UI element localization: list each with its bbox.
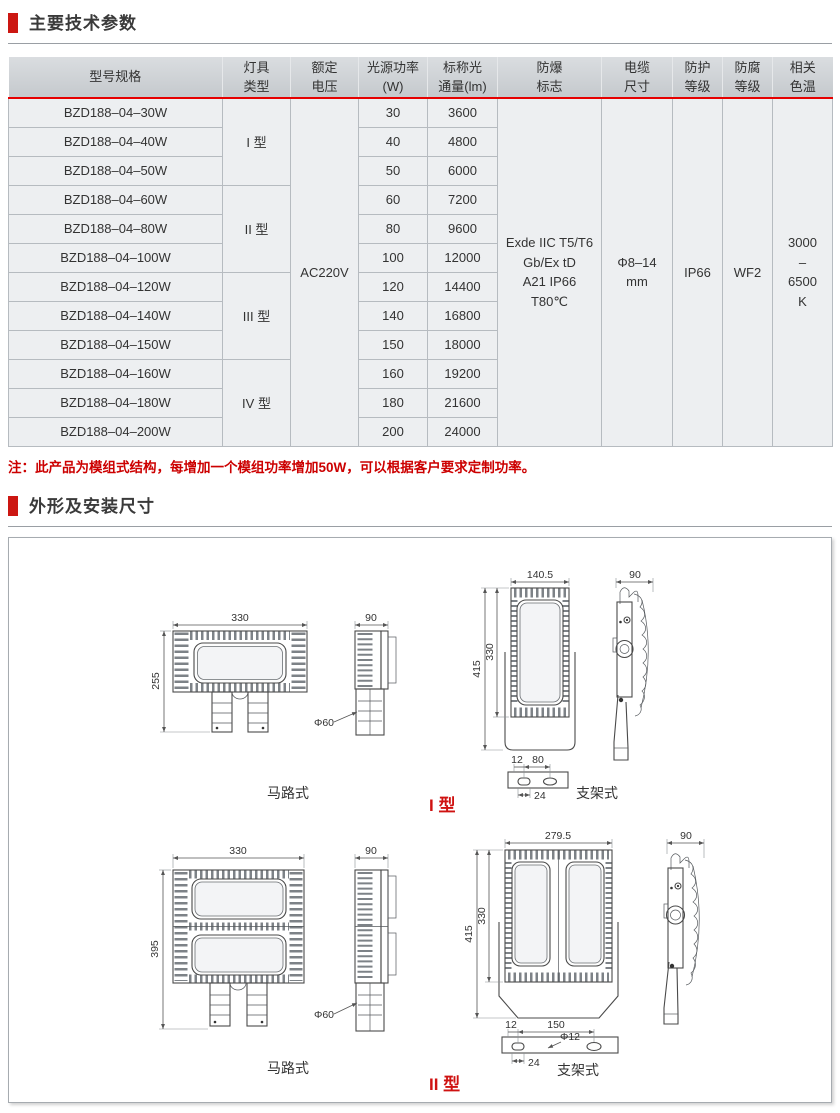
type1-road-caption: 马路式 xyxy=(228,783,348,803)
type1-bracket-caption: 支架式 xyxy=(537,783,657,803)
section-header-params: 主要技术参数 xyxy=(8,9,832,44)
cell-model: BZD188–04–50W xyxy=(9,156,223,185)
cell-cct: 3000 – 6500 K xyxy=(773,98,833,446)
dim-type2-bracket-hole-dia: Φ12 xyxy=(560,1031,580,1043)
dim-type2-road-pole-dia: Φ60 xyxy=(314,1009,334,1021)
datasheet-page: 主要技术参数 型号规格 灯具 类型 额定 电压 光源功率 (W) 标称光 通量(… xyxy=(0,0,840,1113)
cell-voltage: AC220V xyxy=(291,98,359,446)
dim-type2-bracket-side-width: 90 xyxy=(680,830,692,842)
cell-group-type: I 型 xyxy=(223,98,291,185)
cell-model: BZD188–04–200W xyxy=(9,417,223,446)
cell-cable: Φ8–14 mm xyxy=(602,98,673,446)
dim-type2-bracket-body-height: 330 xyxy=(476,907,488,925)
dim-type1-road-height: 255 xyxy=(150,672,162,690)
red-accent-bar xyxy=(8,13,18,33)
dim-type1-bracket-body-height: 330 xyxy=(484,643,496,661)
col-header-voltage: 额定 电压 xyxy=(291,57,359,98)
type1-bracket-drawing: 140.5 415 330 12 80 24 xyxy=(470,552,725,807)
col-header-cct: 相关 色温 xyxy=(773,57,833,98)
cell-group-type: II 型 xyxy=(223,185,291,272)
col-header-ip: 防护 等级 xyxy=(673,57,723,98)
type2-bracket-caption: 支架式 xyxy=(518,1060,638,1080)
type2-bracket-drawing: 279.5 415 330 12 150 Φ12 24 xyxy=(458,826,748,1076)
dim-type1-bracket-total-height: 415 xyxy=(471,660,483,678)
cell-flux: 4800 xyxy=(428,127,498,156)
cell-model: BZD188–04–150W xyxy=(9,330,223,359)
dim-type1-road-width: 330 xyxy=(231,612,249,624)
dim-type2-road-height: 395 xyxy=(150,940,161,958)
col-header-model: 型号规格 xyxy=(9,57,223,98)
type2-label: II 型 xyxy=(429,1070,460,1095)
cell-model: BZD188–04–180W xyxy=(9,388,223,417)
cell-flux: 7200 xyxy=(428,185,498,214)
cell-flux: 3600 xyxy=(428,98,498,127)
col-header-corrosion: 防腐 等级 xyxy=(723,57,773,98)
dim-type2-road-width: 330 xyxy=(229,845,247,857)
cell-model: BZD188–04–80W xyxy=(9,214,223,243)
cell-flux: 21600 xyxy=(428,388,498,417)
dim-type1-road-pole-dia: Φ60 xyxy=(314,717,334,729)
cell-power: 50 xyxy=(359,156,428,185)
col-header-power: 光源功率 (W) xyxy=(359,57,428,98)
cell-power: 150 xyxy=(359,330,428,359)
cell-power: 180 xyxy=(359,388,428,417)
cell-power: 40 xyxy=(359,127,428,156)
col-header-flux: 标称光 通量(lm) xyxy=(428,57,498,98)
cell-power: 30 xyxy=(359,98,428,127)
dim-type1-bracket-width: 140.5 xyxy=(527,569,553,581)
cell-power: 200 xyxy=(359,417,428,446)
cell-model: BZD188–04–160W xyxy=(9,359,223,388)
cell-model: BZD188–04–40W xyxy=(9,127,223,156)
col-header-ex-mark: 防爆 标志 xyxy=(498,57,602,98)
cell-model: BZD188–04–100W xyxy=(9,243,223,272)
cell-flux: 24000 xyxy=(428,417,498,446)
cell-model: BZD188–04–30W xyxy=(9,98,223,127)
cell-power: 80 xyxy=(359,214,428,243)
type1-label: I 型 xyxy=(429,791,455,816)
cell-power: 60 xyxy=(359,185,428,214)
cell-flux: 19200 xyxy=(428,359,498,388)
type2-road-drawing: 330 395 90 Φ60 xyxy=(150,843,400,1058)
cell-flux: 18000 xyxy=(428,330,498,359)
cell-corrosion: WF2 xyxy=(723,98,773,446)
section-title: 主要技术参数 xyxy=(29,14,137,33)
dim-type1-bracket-hole-offset: 12 xyxy=(511,754,523,766)
spec-table: 型号规格 灯具 类型 额定 电压 光源功率 (W) 标称光 通量(lm) 防爆 … xyxy=(8,57,833,447)
dim-type1-bracket-hole-span: 80 xyxy=(532,754,544,766)
cell-flux: 12000 xyxy=(428,243,498,272)
cell-power: 140 xyxy=(359,301,428,330)
cell-group-type: III 型 xyxy=(223,272,291,359)
cell-model: BZD188–04–140W xyxy=(9,301,223,330)
cell-model: BZD188–04–120W xyxy=(9,272,223,301)
dim-type1-road-side-width: 90 xyxy=(365,612,377,624)
dim-type2-bracket-total-height: 415 xyxy=(463,925,475,943)
section-header-dimensions: 外形及安装尺寸 xyxy=(8,492,832,527)
table-header-row: 型号规格 灯具 类型 额定 电压 光源功率 (W) 标称光 通量(lm) 防爆 … xyxy=(9,57,833,98)
cell-flux: 16800 xyxy=(428,301,498,330)
section-title: 外形及安装尺寸 xyxy=(29,497,155,516)
cell-power: 120 xyxy=(359,272,428,301)
cell-flux: 6000 xyxy=(428,156,498,185)
col-header-lamp-type: 灯具 类型 xyxy=(223,57,291,98)
cell-flux: 9600 xyxy=(428,214,498,243)
cell-flux: 14400 xyxy=(428,272,498,301)
dim-type2-bracket-hole-offset: 12 xyxy=(505,1019,517,1031)
dim-type1-bracket-side-width: 90 xyxy=(629,569,641,581)
cell-ex-mark: Exde IIC T5/T6 Gb/Ex tD A21 IP66 T80℃ xyxy=(498,98,602,446)
red-accent-bar xyxy=(8,496,18,516)
cell-group-type: IV 型 xyxy=(223,359,291,446)
dim-type2-bracket-width: 279.5 xyxy=(545,830,571,842)
type1-road-drawing: 330 255 90 Φ60 xyxy=(150,565,400,780)
cell-ip: IP66 xyxy=(673,98,723,446)
dimension-drawings-panel: 330 255 90 Φ60 马路式 xyxy=(8,537,832,1103)
col-header-cable: 电缆 尺寸 xyxy=(602,57,673,98)
cell-model: BZD188–04–60W xyxy=(9,185,223,214)
type2-road-caption: 马路式 xyxy=(228,1058,348,1078)
cell-power: 100 xyxy=(359,243,428,272)
table-row: BZD188–04–30W I 型 AC220V 30 3600 Exde II… xyxy=(9,98,833,127)
dim-type2-road-side-width: 90 xyxy=(365,845,377,857)
module-note: 注：此产品为模组式结构，每增加一个模组功率增加50W，可以根据客户要求定制功率。 xyxy=(8,456,535,476)
dim-type2-bracket-hole-span: 150 xyxy=(547,1019,565,1031)
cell-power: 160 xyxy=(359,359,428,388)
